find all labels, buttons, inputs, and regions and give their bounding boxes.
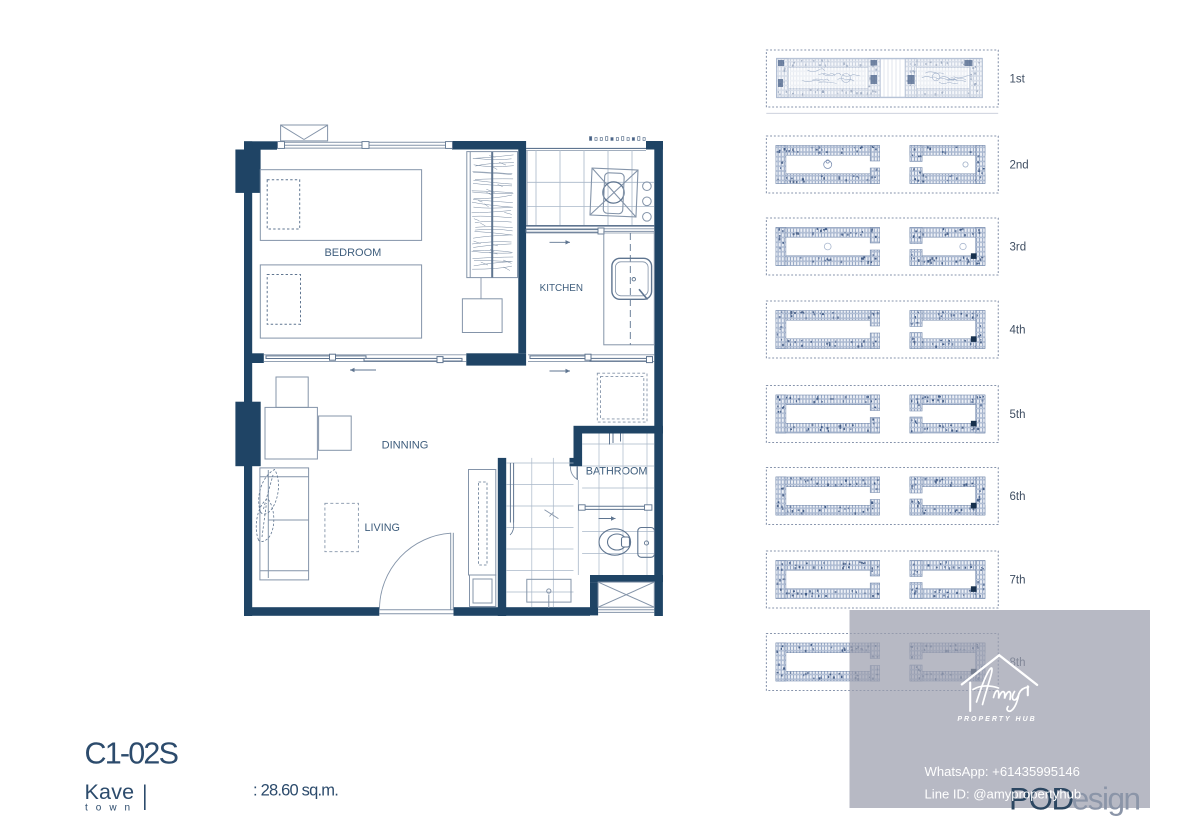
svg-text:KITCHEN: KITCHEN — [540, 283, 583, 294]
svg-text:5th: 5th — [1010, 409, 1026, 421]
svg-text:6th: 6th — [1010, 491, 1026, 503]
svg-text:Kave: Kave — [85, 780, 135, 804]
svg-text:PROPERTY HUB: PROPERTY HUB — [957, 716, 1036, 723]
svg-text:town: town — [85, 803, 138, 814]
svg-text:: 28.60 sq.m.: : 28.60 sq.m. — [253, 782, 338, 800]
svg-text:LIVING: LIVING — [364, 522, 399, 534]
svg-text:BATHROOM: BATHROOM — [586, 466, 648, 478]
svg-text:BEDROOM: BEDROOM — [324, 247, 381, 259]
svg-text:2nd: 2nd — [1010, 160, 1029, 172]
svg-text:3rd: 3rd — [1010, 242, 1027, 254]
svg-text:C1-02S: C1-02S — [85, 737, 178, 771]
svg-text:WhatsApp: +61435995146: WhatsApp: +61435995146 — [925, 764, 1080, 779]
svg-text:Line ID: @amypropertyhub: Line ID: @amypropertyhub — [925, 787, 1082, 802]
svg-text:1st: 1st — [1010, 74, 1026, 86]
svg-text:4th: 4th — [1010, 325, 1026, 337]
svg-text:7th: 7th — [1010, 575, 1026, 587]
svg-text:DINNING: DINNING — [382, 439, 429, 451]
